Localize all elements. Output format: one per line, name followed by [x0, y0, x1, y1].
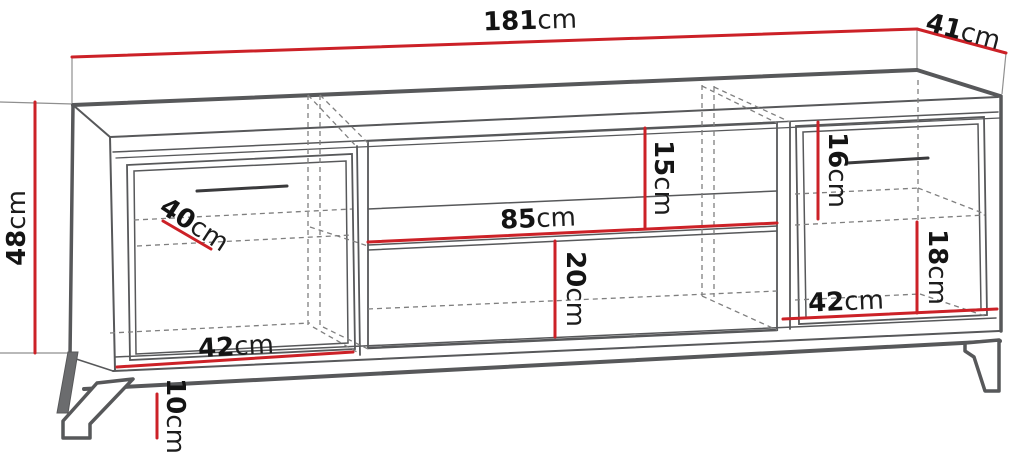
dim-label-left-width: 42cm — [197, 332, 274, 363]
back-left-leg — [57, 352, 78, 413]
dim-label-middle-lower-height: 20cm — [562, 251, 588, 327]
front-right-leg — [965, 340, 999, 391]
dim-label-leg-height: 10cm — [162, 378, 188, 454]
dim-label-middle-upper-height: 15cm — [650, 140, 676, 216]
dim-label-right-upper-height: 16cm — [824, 132, 850, 208]
furniture-dimension-diagram: 181cm 41cm 48cm 40cm 15cm 85cm 20cm 16cm… — [0, 0, 1020, 463]
front-left-leg — [63, 379, 133, 438]
dim-label-overall-width: 181cm — [483, 7, 578, 36]
dim-label-body-height: 48cm — [4, 190, 30, 266]
dim-label-middle-width: 85cm — [500, 204, 577, 233]
dim-label-right-width: 42cm — [808, 287, 885, 316]
dim-label-right-lower-height: 18cm — [924, 229, 950, 305]
